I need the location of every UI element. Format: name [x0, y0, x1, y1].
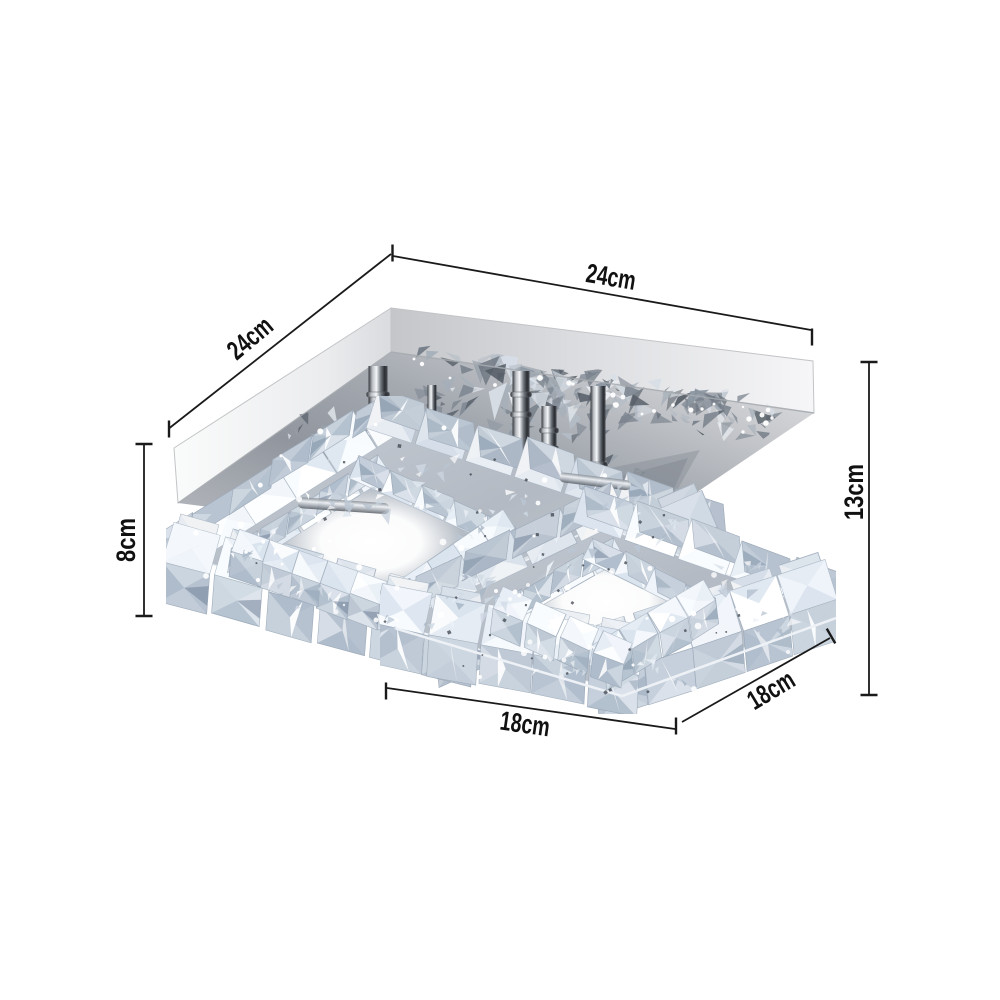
svg-text:13cm: 13cm: [839, 464, 869, 520]
svg-text:18cm: 18cm: [742, 664, 800, 715]
svg-text:18cm: 18cm: [498, 706, 552, 743]
svg-text:8cm: 8cm: [111, 518, 141, 562]
svg-text:24cm: 24cm: [584, 258, 638, 296]
svg-text:24cm: 24cm: [221, 310, 279, 365]
